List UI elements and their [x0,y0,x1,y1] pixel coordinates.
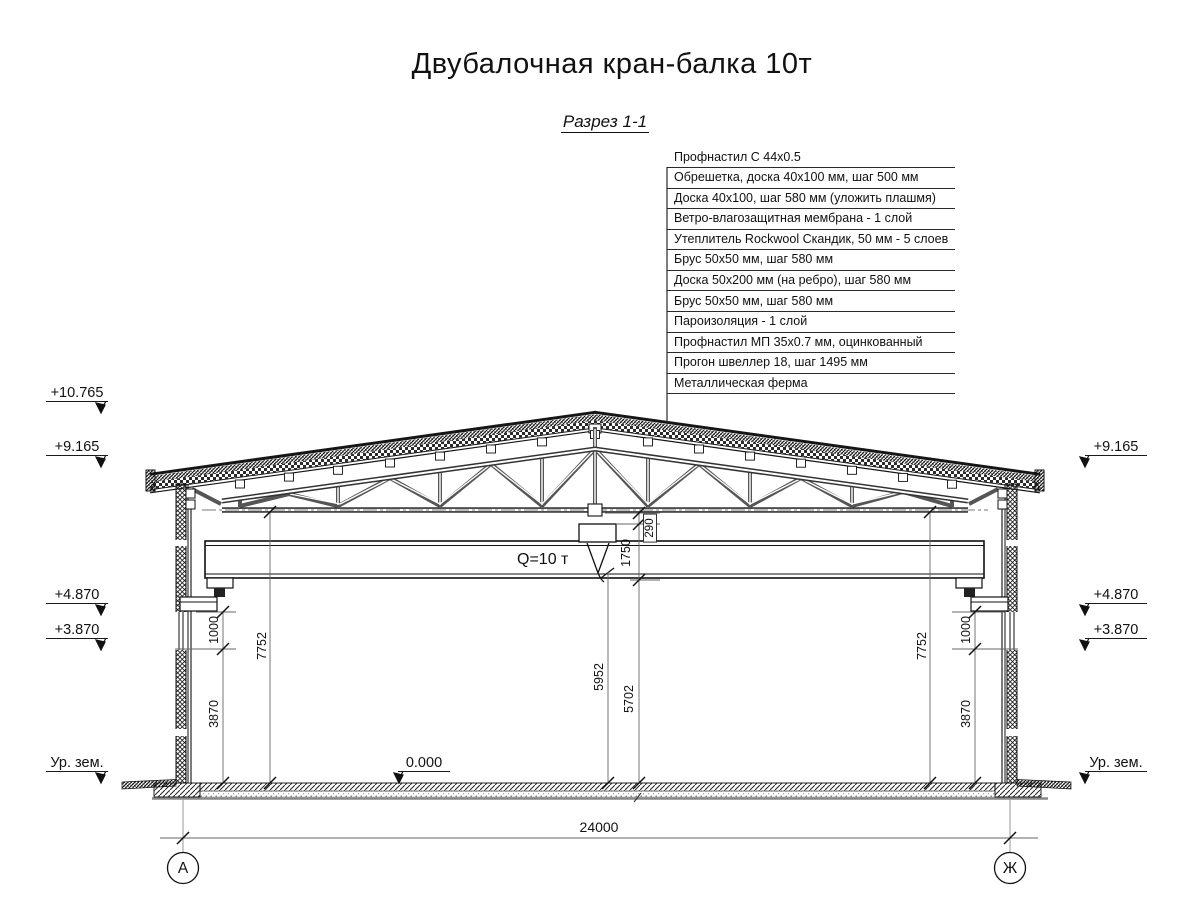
dim-1000-right: 1000 [959,616,973,644]
fascia-right [1035,470,1044,491]
elevation-eaves-right: +9.165 [1085,439,1147,456]
callout-row: Брус 50х50 мм, шаг 580 мм [667,291,955,313]
wall-right [998,484,1018,783]
elevation-arrows [96,401,1089,783]
trolley [579,524,616,542]
elevation-joint-left: +3.870 [46,622,108,639]
callout-row: Профнастил МП 35х0.7 мм, оцинкованный [667,332,955,354]
wall-left [175,484,195,783]
crane-wheel-left [214,588,225,597]
drawing-sheet: Двубалочная кран-балка 10т Разрез 1-1 Пр… [0,0,1200,900]
elevation-floor-zero: 0.000 [398,755,450,772]
elevation-rail-right: +4.870 [1085,587,1147,604]
dim-7752-left: 7752 [255,632,269,660]
end-carriage-left [207,578,233,588]
callout-row: Прогон швеллер 18, шаг 1495 мм [667,352,955,374]
grid-axis-letter-right: Ж [1003,860,1017,878]
dim-3870-right: 3870 [959,700,973,728]
callout-row: Обрешетка, доска 40х100 мм, шаг 500 мм [667,167,955,189]
dim-3870-left: 3870 [207,700,221,728]
section-linework [0,0,1200,900]
fascia-left [146,470,155,491]
elevation-eaves-left: +9.165 [46,439,108,456]
callout-row: Доска 40х100, шаг 580 мм (уложить плашмя… [667,188,955,210]
callout-row: Металлическая ферма [667,373,955,395]
elevation-rail-left: +4.870 [46,587,108,604]
dim-5702: 5702 [622,685,636,713]
dim-7752-right: 7752 [915,632,929,660]
section-label: Разрез 1-1 [0,112,1200,132]
grid-axis-letter-left: А [178,860,188,878]
callout-row: Профнастил С 44х0.5 [667,147,955,169]
elevation-ridge: +10.765 [46,385,108,402]
truss-bottom-chord [202,504,988,516]
dim-1750: 1750 [619,539,633,567]
crane-load-label: Q=10 т [517,551,568,569]
dim-5952: 5952 [592,663,606,691]
floor-slab [122,780,1071,803]
dim-290: 290 [643,513,657,542]
crane-wheel-right [964,588,975,597]
dim-span-24000: 24000 [540,819,658,835]
crane-bridge [180,524,1008,611]
dim-1000-left: 1000 [207,616,221,644]
crane-console-left [180,597,217,611]
elevation-ground-left: Ур. зем. [46,755,108,772]
callout-row: Пароизоляция - 1 слой [667,311,955,333]
end-carriage-right [956,578,982,588]
page-title: Двубалочная кран-балка 10т [0,48,1200,81]
callout-row: Брус 50х50 мм, шаг 580 мм [667,249,955,271]
elevation-joint-right: +3.870 [1085,622,1147,639]
crane-console-right [971,597,1008,611]
callout-row: Доска 50х200 мм (на ребро), шаг 580 мм [667,270,955,292]
callout-row: Утеплитель Rockwool Скандик, 50 мм - 5 с… [667,229,955,251]
callout-row: Ветро-влагозащитная мембрана - 1 слой [667,208,955,230]
elevation-ground-right: Ур. зем. [1085,755,1147,772]
